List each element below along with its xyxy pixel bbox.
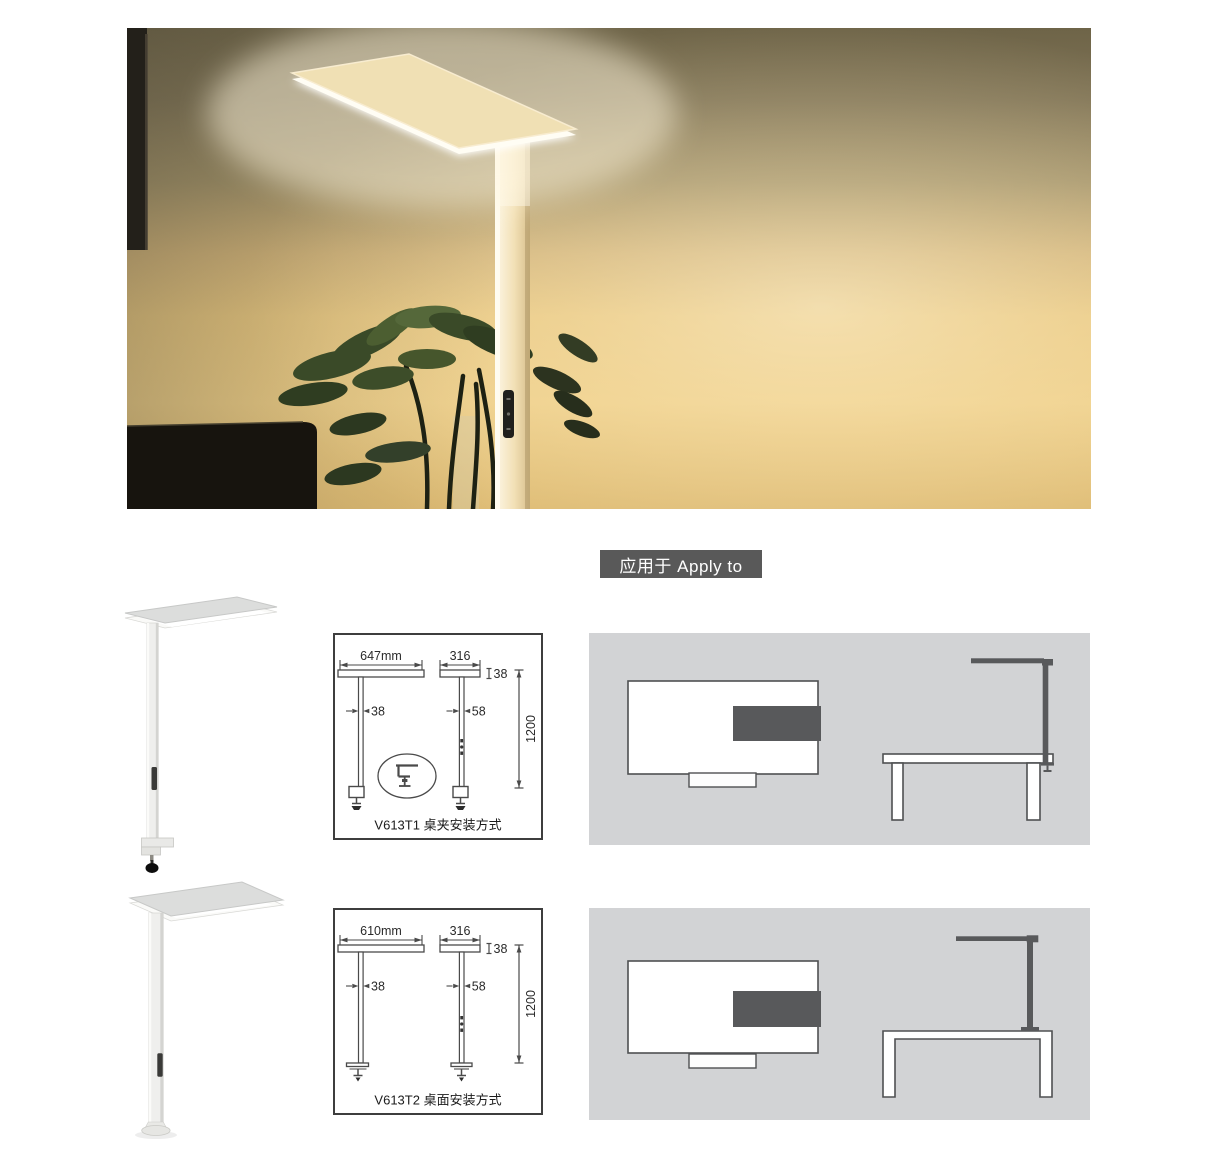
- lamp2-control-strip-icon: [157, 1053, 162, 1076]
- side-pole-buttons-icon: [460, 1016, 463, 1032]
- apply-to-label: 应用于 Apply to: [619, 552, 742, 577]
- lamp-control-buttons-icon: [503, 390, 514, 438]
- dim-pole-side: 58: [472, 979, 486, 993]
- table-leg: [892, 763, 903, 820]
- dim-head-thickness: 38: [494, 667, 508, 681]
- catalog-page: { "apply_badge": { "label": "应用于 Apply t…: [0, 0, 1215, 1152]
- chair: [689, 773, 756, 787]
- tv-frame: [127, 28, 148, 250]
- dim-head-width: 647mm: [360, 649, 402, 663]
- diagram-caption: V613T1 桌夹安装方式: [374, 818, 501, 833]
- dim-head-depth: 316: [450, 924, 471, 938]
- application-panel-desktop: [589, 908, 1090, 1120]
- dim-pole-side: 58: [472, 704, 486, 718]
- dim-pole-front: 38: [371, 704, 385, 718]
- apply-to-badge: 应用于 Apply to: [600, 550, 762, 578]
- product-render-v613t1: [110, 592, 310, 877]
- clamp-knob: [146, 863, 159, 873]
- lamp-head-top-view: [733, 706, 821, 741]
- table-leg: [1027, 763, 1040, 820]
- desk-top-view: [628, 681, 821, 787]
- lamp2-pole: [148, 913, 163, 1124]
- lamp1-control-strip-icon: [152, 767, 158, 790]
- dimension-diagram-v613t2: 610mm 316 38 38 58 1200 V613T2 桌面安装方式: [333, 908, 543, 1115]
- application-panel-clamp: [589, 633, 1090, 845]
- tabletop: [883, 754, 1053, 763]
- lamp1-pole: [147, 623, 159, 843]
- dim-head-thickness: 38: [494, 942, 508, 956]
- diagram-caption: V613T2 桌面安装方式: [374, 1093, 501, 1108]
- clamp-icon: [1041, 763, 1054, 766]
- product-render-v613t2: [110, 877, 310, 1142]
- lamp2-round-base: [142, 1122, 170, 1136]
- dim-height: 1200: [524, 715, 538, 743]
- dim-pole-front: 38: [371, 979, 385, 993]
- monitor: [127, 422, 317, 509]
- dim-head-width: 610mm: [360, 924, 402, 938]
- desk-top-view: [628, 961, 821, 1068]
- hero-photo-scene: [127, 28, 1091, 509]
- dimension-diagram-v613t1: 647mm 316 38 38 58 1200 V613T1 桌夹安装方式: [333, 633, 543, 840]
- side-pole-buttons-icon: [460, 739, 463, 755]
- lamp1-clamp: [142, 838, 174, 873]
- lamp-head-top-view: [733, 991, 821, 1027]
- dim-head-depth: 316: [450, 649, 471, 663]
- dim-height: 1200: [524, 990, 538, 1018]
- base-foot-icon: [1021, 1027, 1039, 1031]
- chair: [689, 1054, 756, 1068]
- hero-photo: [127, 28, 1091, 509]
